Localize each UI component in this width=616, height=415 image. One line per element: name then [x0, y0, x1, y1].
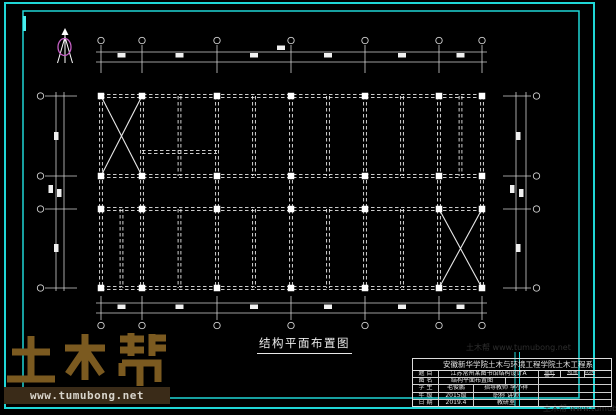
beam-lines	[100, 95, 484, 290]
student-label: 学 生	[413, 385, 439, 391]
title-block: 安徽新华学院土木与环境工程学院土木工程系 题 目 江苏常州某图书馆结构设计A 图…	[412, 358, 612, 407]
sheetname-value: 结构平面布置图	[439, 378, 506, 384]
tumubang-logo-icon	[4, 330, 172, 388]
cad-viewport: 结构平面布置图 www.tumubong.net 土木帮 www.tumubon…	[0, 0, 616, 415]
title-block-row-sheetname: 图 名 结构平面布置图	[413, 378, 611, 385]
tumubang-url-banner: www.tumubong.net	[4, 387, 170, 404]
faint-watermark-text: 土木帮 www.tumubong.net	[466, 342, 571, 353]
grade-extra: 职称 讲师	[474, 393, 539, 399]
date-extra: 教研室	[474, 400, 539, 407]
sheet-no-label: 图号	[544, 375, 554, 378]
date-label: 日 期	[413, 400, 439, 407]
drawing-title: 结构平面布置图	[257, 335, 352, 354]
student-value: 毛俊鹏	[439, 385, 474, 391]
title-block-row-project: 题 目 江苏常州某图书馆结构设计A 图别 图号 结施 比例	[413, 371, 611, 378]
project-value: 江苏常州某图书馆结构设计A	[439, 371, 539, 377]
title-block-row-student: 学 生 毛俊鹏 指导教师 李小祥	[413, 385, 611, 392]
date-value: 2019.4	[439, 400, 474, 407]
north-arrow-icon	[58, 28, 73, 63]
brace-lines	[101, 96, 482, 288]
sheet-type-value: 结施	[567, 371, 577, 375]
title-block-header: 安徽新华学院土木与环境工程学院土木工程系	[413, 359, 611, 371]
title-block-row-date: 日 期 2019.4 教研室	[413, 400, 611, 407]
sheetname-label: 图 名	[413, 378, 439, 384]
grade-value: 2015级	[439, 393, 474, 399]
scale-label: 比例	[585, 371, 595, 375]
title-block-row-grade: 年 级 2015级 职称 讲师	[413, 393, 611, 400]
advisor-text: 指导教师 李小祥	[474, 385, 539, 391]
project-label: 题 目	[413, 371, 439, 377]
column-markers	[98, 93, 486, 292]
grade-label: 年 级	[413, 393, 439, 399]
